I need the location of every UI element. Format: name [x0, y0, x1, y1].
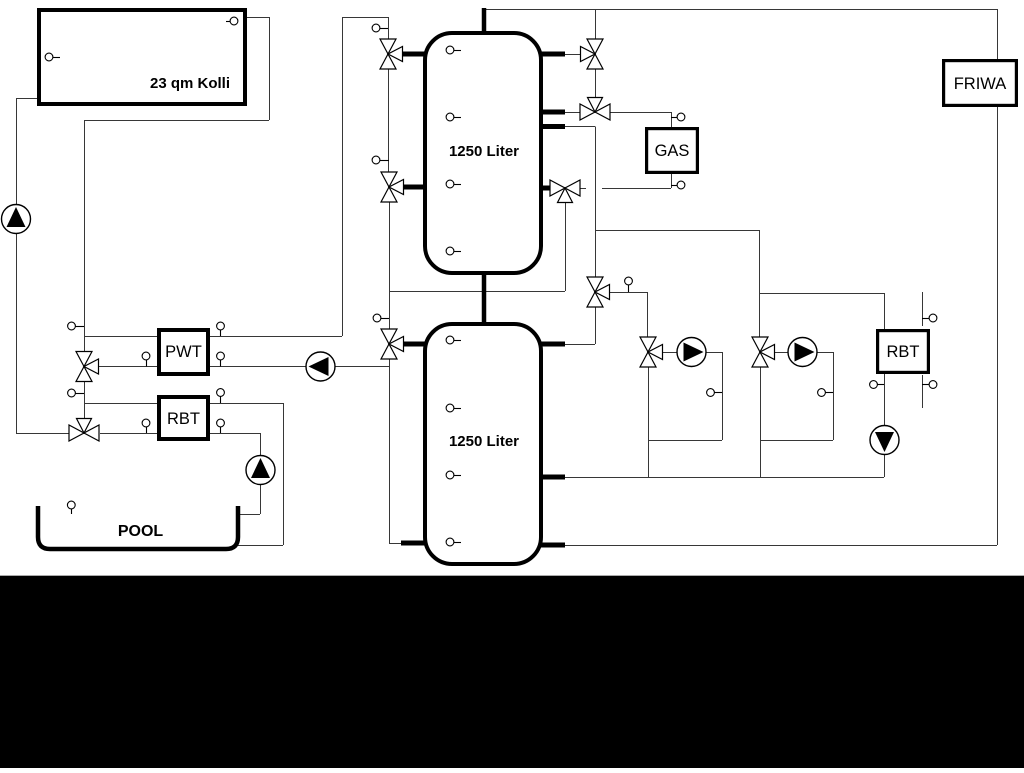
svg-text:1250 Liter: 1250 Liter [449, 433, 519, 450]
svg-text:1250 Liter: 1250 Liter [449, 143, 519, 160]
svg-text:FRIWA: FRIWA [954, 75, 1007, 93]
svg-text:GAS: GAS [655, 142, 690, 160]
svg-text:RBT: RBT [887, 343, 920, 361]
svg-text:23 qm Kolli: 23 qm Kolli [150, 75, 230, 92]
svg-text:RBT: RBT [167, 410, 200, 428]
svg-text:POOL: POOL [118, 523, 164, 540]
svg-text:PWT: PWT [165, 343, 202, 361]
